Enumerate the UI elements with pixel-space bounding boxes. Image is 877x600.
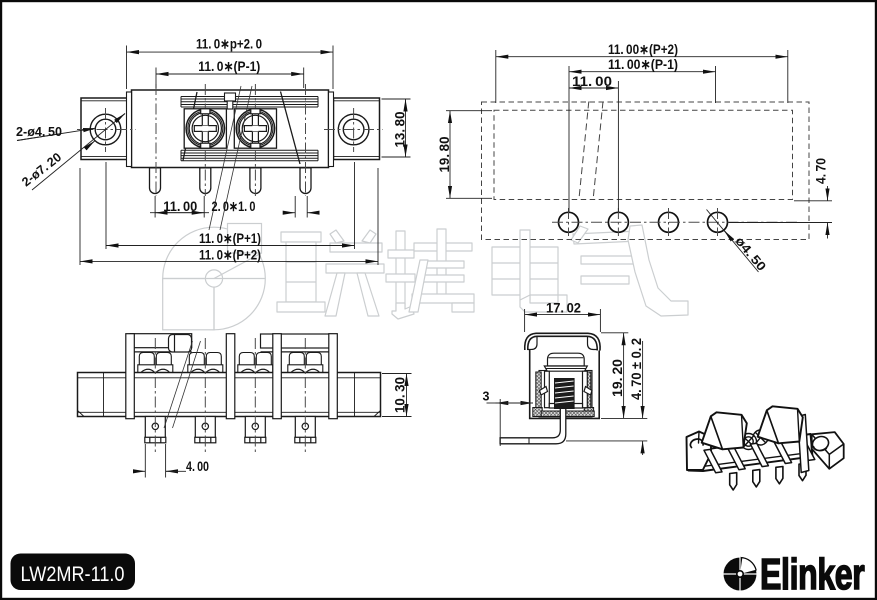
svg-text:2. 0∗1. 0: 2. 0∗1. 0 (212, 198, 256, 214)
svg-text:LW2MR-11.0: LW2MR-11.0 (21, 562, 125, 586)
svg-text:11. 0∗(P+1): 11. 0∗(P+1) (199, 230, 261, 246)
svg-text:11. 0∗(P+2): 11. 0∗(P+2) (199, 247, 261, 263)
svg-text:11. 0∗(P-1): 11. 0∗(P-1) (198, 58, 260, 74)
svg-text:Elinker: Elinker (760, 550, 865, 599)
svg-text:10. 30: 10. 30 (392, 377, 408, 413)
svg-text:11. 00∗(P+2): 11. 00∗(P+2) (608, 41, 678, 57)
svg-text:19. 20: 19. 20 (609, 359, 625, 397)
svg-text:19. 80: 19. 80 (436, 136, 452, 172)
svg-text:11. 00: 11. 00 (163, 198, 197, 214)
svg-text:4. 70: 4. 70 (813, 158, 829, 184)
svg-text:4. 70 ± 0. 2: 4. 70 ± 0. 2 (628, 338, 644, 400)
svg-text:13. 80: 13. 80 (392, 111, 408, 147)
svg-text:3: 3 (483, 390, 490, 404)
svg-text:17. 02: 17. 02 (546, 300, 581, 316)
svg-text:11. 00: 11. 00 (572, 73, 612, 89)
svg-text:4. 00: 4. 00 (186, 458, 209, 474)
svg-text:11. 00∗(P-1): 11. 00∗(P-1) (608, 56, 678, 72)
svg-text:2-ø4. 50: 2-ø4. 50 (16, 125, 62, 139)
svg-text:11. 0∗p+2. 0: 11. 0∗p+2. 0 (196, 36, 262, 52)
